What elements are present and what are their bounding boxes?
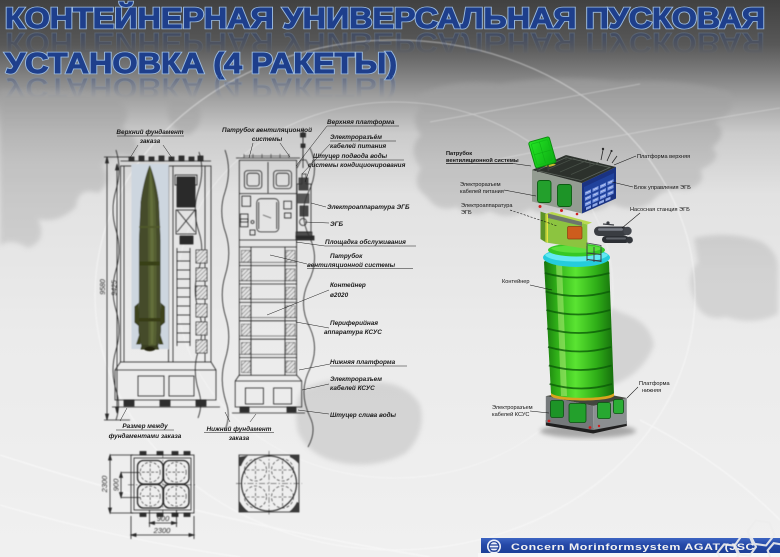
svg-text:Электроразъём: Электроразъём	[330, 134, 382, 141]
svg-text:Платформа: Платформа	[639, 381, 671, 387]
svg-text:Площадка обслуживания: Площадка обслуживания	[325, 238, 406, 246]
svg-text:9425: 9425	[111, 280, 118, 296]
svg-text:900: 900	[157, 514, 170, 523]
svg-text:Электроразъем: Электроразъем	[330, 376, 382, 383]
svg-text:ЭГБ: ЭГБ	[461, 210, 472, 216]
svg-text:заказа: заказа	[229, 435, 250, 442]
svg-text:2300: 2300	[100, 475, 109, 494]
svg-text:Верхний фундамент: Верхний фундамент	[116, 128, 183, 136]
svg-text:Штуцер подвода воды: Штуцер подвода воды	[313, 152, 388, 160]
svg-text:заказа: заказа	[140, 138, 161, 145]
svg-text:Насосная станция ЭГБ: Насосная станция ЭГБ	[630, 207, 690, 213]
svg-text:вентиляционной системы: вентиляционной системы	[446, 157, 519, 164]
svg-text:900: 900	[112, 478, 121, 491]
svg-text:системы: системы	[252, 136, 283, 143]
svg-text:Нижняя платформа: Нижняя платформа	[330, 359, 396, 366]
svg-text:Электроаппаратура ЭГБ: Электроаппаратура ЭГБ	[327, 204, 410, 211]
svg-text:Верхняя платформа: Верхняя платформа	[327, 119, 395, 126]
svg-text:Электроразъем: Электроразъем	[460, 182, 501, 188]
svg-text:кабелей КСУС: кабелей КСУС	[492, 411, 529, 418]
svg-text:2300: 2300	[153, 526, 172, 535]
svg-text:Контейнер: Контейнер	[330, 281, 366, 289]
svg-text:Размер между: Размер между	[122, 422, 168, 430]
svg-text:Патрубок: Патрубок	[446, 150, 472, 157]
svg-text:Электроразъем: Электроразъем	[492, 405, 533, 411]
svg-text:Блок управления ЭГБ: Блок управления ЭГБ	[634, 185, 691, 191]
svg-text:аппаратура КСУС: аппаратура КСУС	[324, 329, 382, 336]
svg-text:кабелей питания: кабелей питания	[330, 142, 386, 150]
svg-text:Платформа верхняя: Платформа верхняя	[637, 154, 690, 160]
svg-text:ЭГБ: ЭГБ	[330, 221, 344, 228]
svg-text:Патрубок вентиляционной: Патрубок вентиляционной	[222, 126, 312, 134]
svg-text:кабелей питания: кабелей питания	[460, 188, 504, 195]
svg-text:УСТАНОВКА (4 РАКЕТЫ): УСТАНОВКА (4 РАКЕТЫ)	[5, 71, 397, 103]
svg-text:нижняя: нижняя	[642, 388, 661, 394]
svg-text:фундаментами заказа: фундаментами заказа	[109, 432, 182, 440]
svg-text:Штуцер слива воды: Штуцер слива воды	[330, 411, 397, 419]
svg-text:Нижний фундамент: Нижний фундамент	[207, 425, 272, 433]
svg-text:Патрубок: Патрубок	[330, 252, 363, 260]
svg-text:кабелей КСУС: кабелей КСУС	[330, 384, 375, 392]
svg-text:Контейнер: Контейнер	[502, 278, 530, 285]
svg-text:системы кондиционирования: системы кондиционирования	[308, 161, 406, 169]
svg-text:Электроаппаратура: Электроаппаратура	[461, 203, 513, 209]
svg-text:Периферийная: Периферийная	[330, 319, 378, 327]
svg-text:9580: 9580	[100, 279, 107, 295]
svg-text:вентиляционной системы: вентиляционной системы	[307, 261, 396, 269]
svg-text:ø2020: ø2020	[330, 292, 349, 299]
